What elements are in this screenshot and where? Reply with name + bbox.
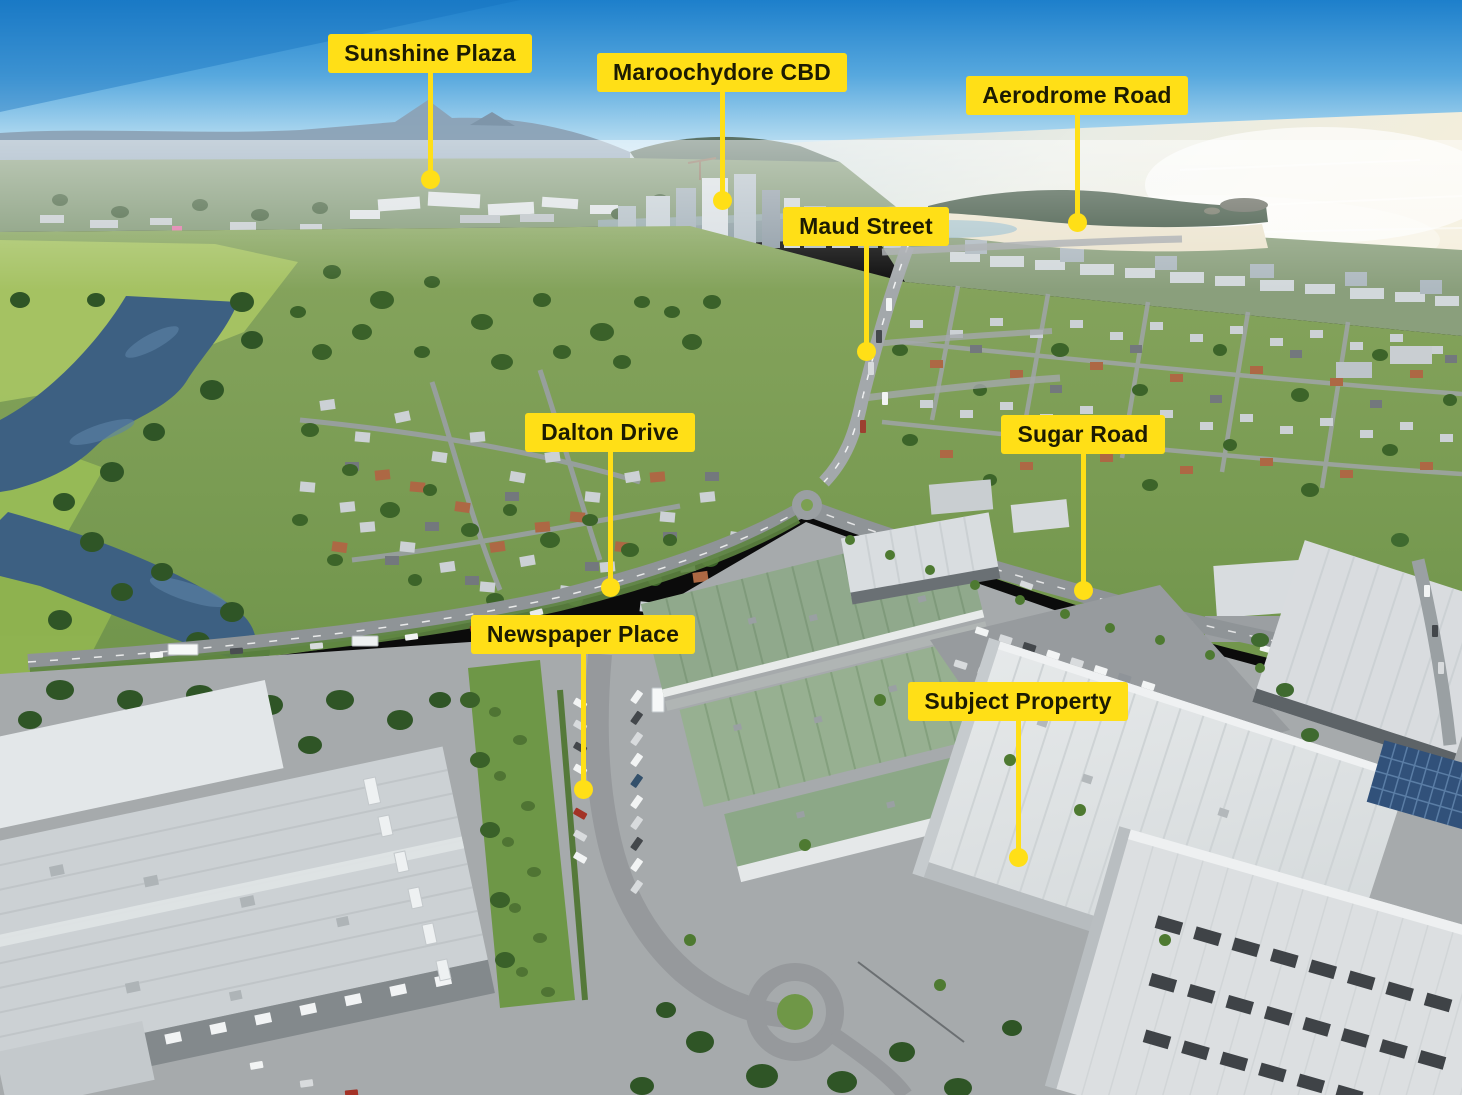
- callout-label: Dalton Drive: [525, 413, 695, 452]
- callout-line: [720, 92, 725, 192]
- callout-label: Aerodrome Road: [966, 76, 1187, 115]
- callout-pin-dot: [1068, 213, 1087, 232]
- callout-label: Maud Street: [783, 207, 949, 246]
- callout-maud-street: Maud Street: [696, 207, 1036, 361]
- callout-pin-dot: [1074, 581, 1093, 600]
- callout-line: [1016, 721, 1021, 849]
- callout-line: [581, 654, 586, 781]
- callout-maroochydore-cbd: Maroochydore CBD: [552, 53, 892, 210]
- callout-line: [608, 452, 613, 579]
- callout-label: Sugar Road: [1001, 415, 1164, 454]
- callout-subject-property: Subject Property: [848, 682, 1188, 867]
- callout-line: [1075, 115, 1080, 214]
- callout-line: [864, 246, 869, 343]
- callout-pin-dot: [421, 170, 440, 189]
- callout-sugar-road: Sugar Road: [913, 415, 1253, 600]
- callout-sunshine-plaza: Sunshine Plaza: [260, 34, 600, 189]
- callout-pin-dot: [1009, 848, 1028, 867]
- callout-pin-dot: [601, 578, 620, 597]
- callout-label: Sunshine Plaza: [328, 34, 532, 73]
- callout-dalton-drive: Dalton Drive: [440, 413, 780, 597]
- callout-line: [1081, 454, 1086, 582]
- callout-pin-dot: [574, 780, 593, 799]
- callout-line: [428, 73, 433, 171]
- callout-label: Maroochydore CBD: [597, 53, 847, 92]
- callout-label: Subject Property: [908, 682, 1127, 721]
- callout-label: Newspaper Place: [471, 615, 695, 654]
- callout-pin-dot: [857, 342, 876, 361]
- aerial-annotated-image: Sunshine Plaza Maroochydore CBD Aerodrom…: [0, 0, 1462, 1095]
- callout-newspaper-place: Newspaper Place: [413, 615, 753, 799]
